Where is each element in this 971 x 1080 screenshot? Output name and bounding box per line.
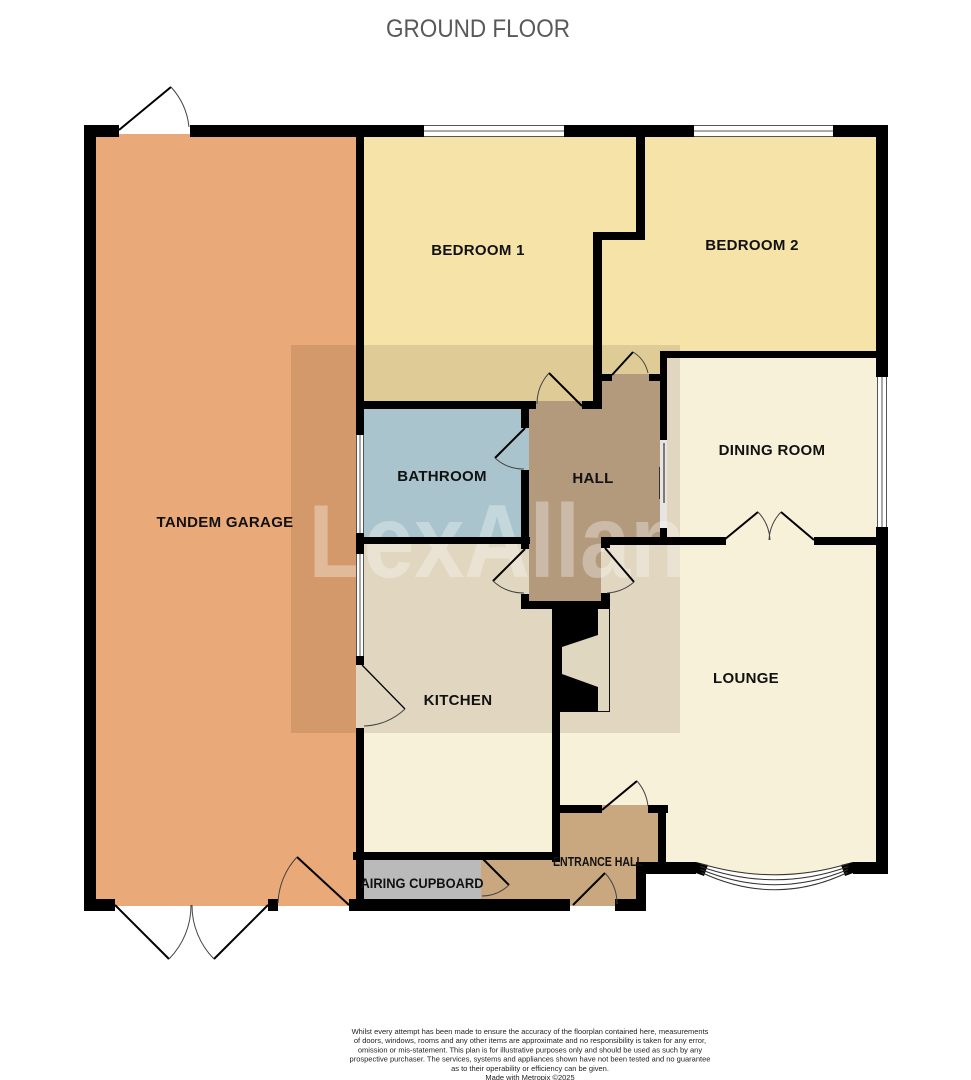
svg-text:LOUNGE: LOUNGE bbox=[713, 670, 779, 687]
svg-text:AIRING CUPBOARD: AIRING CUPBOARD bbox=[361, 876, 484, 891]
svg-text:HALL: HALL bbox=[572, 470, 613, 487]
svg-text:KITCHEN: KITCHEN bbox=[424, 692, 493, 709]
svg-text:ENTRANCE HALL: ENTRANCE HALL bbox=[553, 855, 643, 869]
svg-text:BEDROOM 2: BEDROOM 2 bbox=[705, 237, 799, 254]
svg-text:DINING ROOM: DINING ROOM bbox=[719, 442, 826, 459]
svg-text:omission or mis-statement. Thi: omission or mis-statement. This plan is … bbox=[358, 1045, 702, 1054]
svg-text:as to their operability or eff: as to their operability or efficiency ca… bbox=[451, 1064, 609, 1073]
svg-text:Made with Metropix ©2025: Made with Metropix ©2025 bbox=[485, 1073, 574, 1080]
svg-text:BEDROOM 1: BEDROOM 1 bbox=[431, 242, 525, 259]
svg-text:Whilst every attempt has been: Whilst every attempt has been made to en… bbox=[352, 1027, 709, 1036]
svg-text:TANDEM GARAGE: TANDEM GARAGE bbox=[157, 514, 294, 531]
svg-text:BATHROOM: BATHROOM bbox=[397, 468, 487, 485]
svg-text:GROUND FLOOR: GROUND FLOOR bbox=[386, 15, 570, 43]
svg-text:of doors, windows, rooms and a: of doors, windows, rooms and any other i… bbox=[354, 1036, 706, 1045]
svg-text:prospective purchaser. The ser: prospective purchaser. The services, sys… bbox=[350, 1055, 711, 1064]
